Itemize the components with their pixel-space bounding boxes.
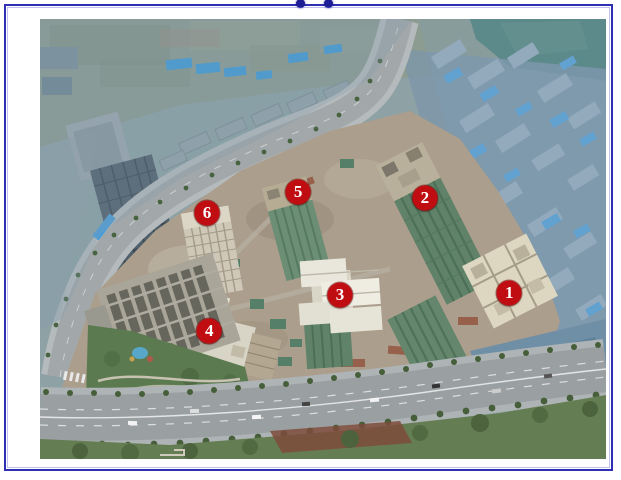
building-marker-3: 3 bbox=[327, 282, 352, 307]
building-marker-2: 2 bbox=[412, 186, 437, 211]
building-marker-6: 6 bbox=[194, 201, 219, 226]
building-marker-label: 6 bbox=[203, 204, 212, 221]
figure-border: 123456 bbox=[4, 4, 613, 471]
border-handle-dot[interactable] bbox=[324, 0, 333, 8]
aerial-photo-art bbox=[40, 19, 606, 459]
building-marker-1: 1 bbox=[497, 281, 522, 306]
aerial-photo: 123456 bbox=[40, 19, 606, 459]
building-marker-label: 2 bbox=[421, 189, 430, 206]
document-page: 123456 bbox=[0, 0, 621, 480]
border-handle-dot[interactable] bbox=[296, 0, 305, 8]
building-marker-label: 1 bbox=[505, 284, 514, 301]
building-marker-label: 5 bbox=[294, 183, 303, 200]
building-marker-label: 3 bbox=[336, 286, 345, 303]
building-marker-label: 4 bbox=[205, 322, 214, 339]
building-marker-5: 5 bbox=[286, 179, 311, 204]
building-marker-4: 4 bbox=[197, 318, 222, 343]
